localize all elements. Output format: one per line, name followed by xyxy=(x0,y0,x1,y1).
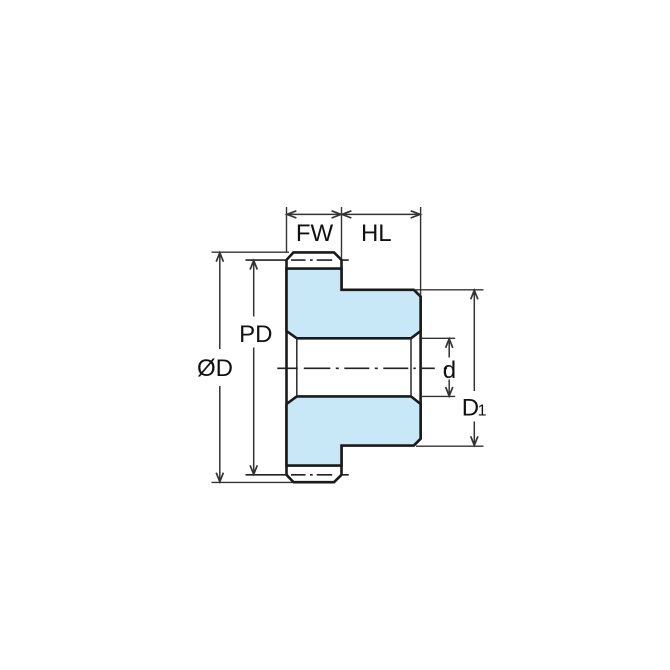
svg-text:PD: PD xyxy=(239,321,272,348)
svg-text:d: d xyxy=(443,357,456,384)
svg-text:ØD: ØD xyxy=(197,355,233,382)
svg-text:D: D xyxy=(462,395,479,422)
svg-text:1: 1 xyxy=(478,403,487,420)
svg-text:HL: HL xyxy=(361,220,392,247)
svg-text:FW: FW xyxy=(296,220,334,247)
